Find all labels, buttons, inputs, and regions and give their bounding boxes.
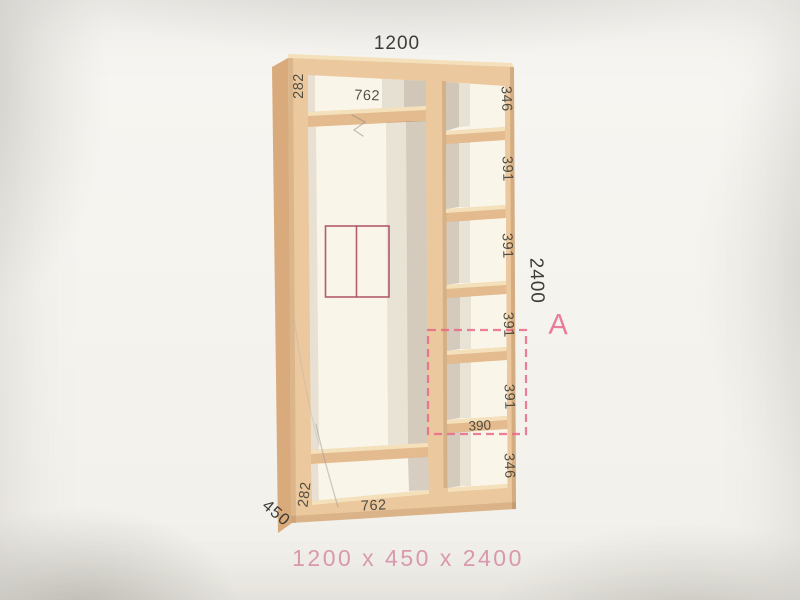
right-section-height-label-3: 391 <box>499 233 516 259</box>
cell-shadow <box>447 297 460 351</box>
right-section-height-label-5: 391 <box>501 384 518 410</box>
size-caption: 1200 x 450 x 2400 <box>292 545 524 571</box>
overall-width-label: 1200 <box>374 33 420 54</box>
cell-shadow <box>459 83 470 127</box>
cell-shadow <box>404 80 426 107</box>
cell-shadow <box>406 121 428 444</box>
wardrobe-diagram-photo: 1200 2400 450 282 762 282 762 346 391 39… <box>0 0 800 600</box>
cell-shadow <box>408 457 429 491</box>
right-section-height-label-1: 346 <box>498 86 515 112</box>
cell-shadow <box>447 221 460 285</box>
cell-shadow <box>459 220 470 283</box>
cell-shadow <box>459 142 470 207</box>
overall-height-label: 2400 <box>525 257 548 304</box>
cell-shadow <box>447 363 460 420</box>
cell-shadow <box>308 75 315 112</box>
right-section-height-label-4: 391 <box>500 312 517 338</box>
left-top-height-label: 282 <box>291 73 307 99</box>
cell-shadow <box>448 432 461 488</box>
cell-shadow <box>460 431 471 486</box>
wardrobe-diagram: 1200 2400 450 282 762 282 762 346 391 39… <box>0 0 800 600</box>
left-bottom-shelf-width-label: 762 <box>361 497 388 514</box>
left-bottom-height-label: 282 <box>296 481 315 508</box>
cell-shadow <box>446 143 459 209</box>
left-top-shelf-width-label: 762 <box>354 88 380 105</box>
cell-shadow <box>446 82 459 131</box>
right-section-height-label-2: 391 <box>499 156 516 182</box>
cell-shadow <box>382 79 404 108</box>
cell-shadow <box>460 362 471 418</box>
marked-shelf-width-label: 390 <box>468 417 491 433</box>
right-section-height-label-6: 346 <box>501 453 518 479</box>
zone-a-label: A <box>548 309 569 342</box>
cell-shadow <box>460 296 471 349</box>
